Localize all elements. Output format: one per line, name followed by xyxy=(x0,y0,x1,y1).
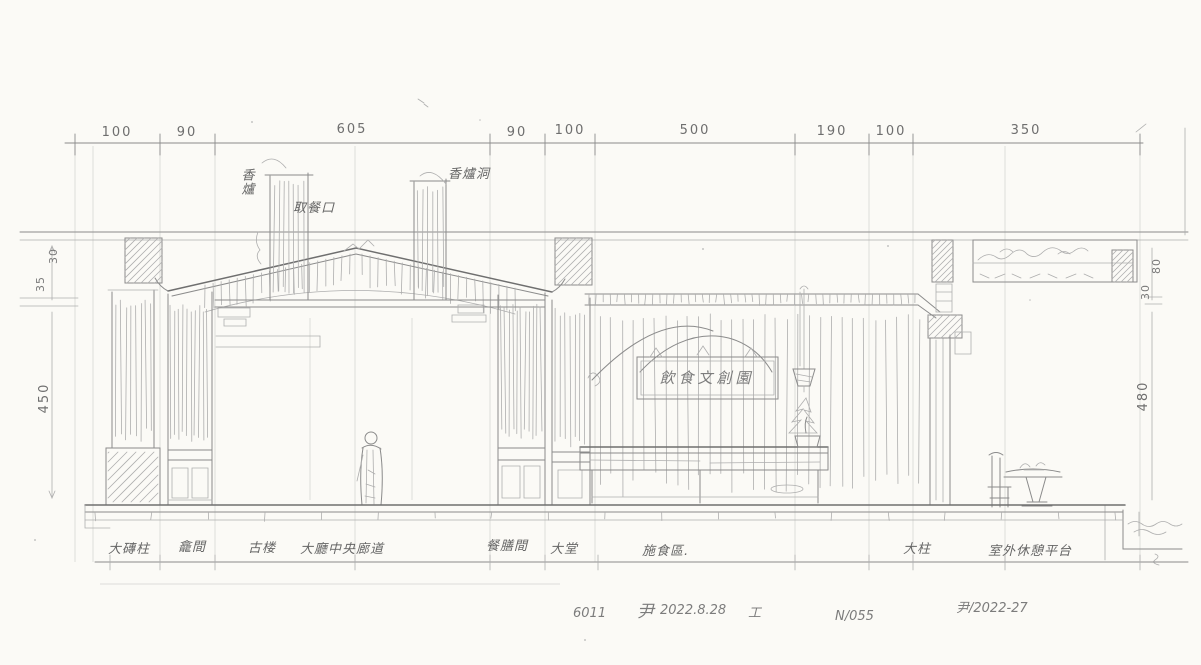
block2-hatch xyxy=(555,238,592,285)
pencil-hatch-line xyxy=(125,238,151,264)
pencil-hatch-line xyxy=(775,513,776,518)
dim-190: 190 xyxy=(817,124,848,139)
pencil-hatch-line xyxy=(645,295,646,304)
pencil-hatch-line xyxy=(417,191,418,287)
pillar3-base-panels xyxy=(502,466,540,498)
window-callout: 取餐口 xyxy=(293,201,335,216)
pencil-hatch-line xyxy=(702,295,703,302)
dim-100-right: 100 xyxy=(876,124,907,139)
outdoor-chair xyxy=(988,453,1011,508)
pencil-hatch-line xyxy=(504,308,506,434)
pencil-hatch-line xyxy=(108,452,127,471)
pencil-hatch-line xyxy=(809,316,810,484)
room-label-shrine: 龕間 xyxy=(178,539,207,555)
pencil-hatch-line xyxy=(127,248,162,283)
bonsai-trunk xyxy=(805,417,807,433)
pencil-hatch-line xyxy=(808,295,809,302)
room-label-corridor: 大廳中央廊道 xyxy=(300,541,385,557)
pencil-hatch-line xyxy=(458,275,459,298)
incense-stand-scribble xyxy=(256,232,261,264)
speck xyxy=(251,121,253,123)
pencil-hatch-line xyxy=(422,189,423,290)
pencil-hatch-line xyxy=(540,307,542,431)
pencil-hatch-line xyxy=(897,317,898,483)
elevation-sketch-canvas: 100 90 605 90 100 500 190 100 350 30 35 … xyxy=(0,0,1201,665)
pencil-hatch-line xyxy=(108,452,118,462)
beam-ticks xyxy=(589,295,915,306)
pencil-hatch-line xyxy=(108,452,154,498)
incense-vent-callout: 香爐洞 xyxy=(448,167,491,182)
pencil-hatch-line xyxy=(122,466,158,502)
pencil-hatch-line xyxy=(194,311,195,435)
wall-planks xyxy=(600,314,919,497)
steps-and-water xyxy=(1105,505,1182,565)
room-label-hall: 大堂 xyxy=(550,542,579,557)
pencil-hatch-line xyxy=(1112,258,1133,279)
pencil-hatch-line xyxy=(273,186,275,293)
central-opening xyxy=(216,318,412,505)
pencil-hatch-line xyxy=(1112,252,1133,273)
pencil-hatch-line xyxy=(394,261,395,286)
pencil-hatch-line xyxy=(108,452,136,480)
pencil-hatch-line xyxy=(688,295,689,304)
figure-body-outline xyxy=(361,448,383,505)
pencil-hatch-line xyxy=(888,513,889,520)
callout-leader-right xyxy=(420,172,446,184)
footer-notes: 6011 尹 2022.8.28 工 N/055 尹/2022-27 xyxy=(573,601,1028,624)
pencil-hatch-line xyxy=(341,256,342,281)
top-dimension-line: 100 90 605 90 100 500 190 100 350 xyxy=(65,122,1143,155)
pillar4-grain xyxy=(555,308,585,447)
pencil-hatch-line xyxy=(520,307,521,439)
figure-head xyxy=(365,432,377,444)
pencil-hatch-line xyxy=(120,300,121,434)
counter-legs xyxy=(592,470,818,503)
pencil-hatch-line xyxy=(191,312,192,442)
left-pillars xyxy=(106,290,212,505)
small-scribble xyxy=(1154,554,1159,565)
bonsai xyxy=(789,398,820,447)
pencil-hatch-line xyxy=(901,295,902,304)
pencil-hatch-line xyxy=(108,452,145,489)
pencil-hatch-line xyxy=(555,238,590,273)
pencil-hatch-line xyxy=(932,240,947,255)
pencil-hatch-line xyxy=(743,319,744,473)
dim-100-mid: 100 xyxy=(555,123,586,138)
right-dim-80: 80 xyxy=(1150,258,1163,274)
dim-100-left: 100 xyxy=(102,125,133,140)
block1-hatch xyxy=(125,238,162,283)
pencil-hatch-line xyxy=(170,305,171,438)
scanned-drawing-sheet: 100 90 605 90 100 500 190 100 350 30 35 … xyxy=(0,0,1201,665)
pencil-hatch-line xyxy=(483,281,484,312)
dining-hall: 飲食文創園 xyxy=(580,286,971,505)
bracket-left xyxy=(218,308,250,326)
left-dimensions: 30 35 450 xyxy=(34,246,60,498)
pencil-hatch-line xyxy=(524,312,526,429)
dim-90-left: 90 xyxy=(177,125,198,140)
pencil-hatch-line xyxy=(555,243,592,280)
pencil-hatch-line xyxy=(775,318,776,492)
pencil-hatch-line xyxy=(151,513,152,520)
pencil-hatch-line xyxy=(278,270,279,292)
pencil-hatch-line xyxy=(752,295,753,302)
pencil-hatch-line xyxy=(919,320,920,484)
callout-leader-left xyxy=(262,159,286,168)
step-profile xyxy=(1123,510,1182,549)
pencil-hatch-line xyxy=(302,264,303,288)
pencil-hatch-line xyxy=(716,295,717,302)
incense-burners: 香爐 取餐口 香爐洞 xyxy=(239,159,492,300)
right-dim-480: 480 xyxy=(1136,381,1151,412)
scan-specks xyxy=(34,99,1031,641)
beam-section-blocks xyxy=(125,238,592,285)
note-code: 6011 xyxy=(573,606,606,621)
pencil-hatch-line xyxy=(317,261,318,291)
pencil-hatch-line xyxy=(617,295,618,302)
pendant-shade xyxy=(793,369,815,386)
note-signature: 尹 xyxy=(637,602,656,622)
pencil-hatch-line xyxy=(1112,250,1117,255)
pencil-hatch-line xyxy=(1112,250,1123,261)
pencil-hatch-line xyxy=(149,493,158,502)
pencil-hatch-line xyxy=(285,268,286,292)
pencil-hatch-line xyxy=(687,316,689,489)
room-label-pantry: 餐膳間 xyxy=(486,539,529,554)
pencil-hatch-line xyxy=(816,295,817,304)
pencil-hatch-line xyxy=(786,320,787,492)
pencil-hatch-line xyxy=(108,452,109,453)
pencil-hatch-line xyxy=(578,271,592,285)
pencil-hatch-line xyxy=(141,303,142,441)
figure-shoulders xyxy=(362,445,381,449)
bonsai-pot xyxy=(795,436,820,447)
pencil-hatch-line xyxy=(140,484,158,502)
pillar1-base-hatch xyxy=(108,452,158,502)
pillar4-base-panel xyxy=(558,470,582,498)
pencil-hatch-line xyxy=(928,315,936,323)
pencil-hatch-line xyxy=(570,316,571,447)
outdoor-table xyxy=(1004,463,1062,506)
pencil-hatch-line xyxy=(928,315,950,337)
left-dim-450: 450 xyxy=(37,383,52,414)
pencil-hatch-line xyxy=(932,246,953,267)
pencil-hatch-line xyxy=(1121,270,1133,282)
vertical-grid-lines xyxy=(75,146,1140,562)
pencil-hatch-line xyxy=(610,318,611,474)
pencil-hatch-line xyxy=(207,309,208,437)
pencil-hatch-line xyxy=(1127,276,1133,282)
terrace-block-right-hatch xyxy=(1112,250,1133,282)
pencil-hatch-line xyxy=(1115,513,1116,520)
pencil-hatch-line xyxy=(213,283,214,308)
ladder-bracket xyxy=(936,284,952,312)
roof-lower-line xyxy=(172,254,548,296)
speck xyxy=(479,119,481,121)
pencil-hatch-line xyxy=(186,309,187,436)
pencil-hatch-line xyxy=(858,295,859,302)
note-revision: 尹/2022-27 xyxy=(956,601,1028,616)
pencil-hatch-line xyxy=(745,295,746,302)
ground xyxy=(85,505,1125,528)
pencil-hatch-line xyxy=(565,313,566,439)
pencil-hatch-line xyxy=(934,315,957,338)
beam-end-step xyxy=(918,294,940,318)
pencil-hatch-line xyxy=(863,318,864,476)
pencil-hatch-line xyxy=(536,304,537,435)
pencil-hatch-line xyxy=(842,317,843,486)
pencil-hatch-line xyxy=(932,258,953,279)
pillar1-base xyxy=(106,448,160,505)
right-dim-30: 30 xyxy=(1139,284,1152,300)
pencil-hatch-line xyxy=(136,306,137,436)
speck xyxy=(887,245,889,247)
room-label-column: 大柱 xyxy=(903,542,932,557)
pencil-hatch-line xyxy=(182,305,183,432)
pencil-hatch-line xyxy=(475,279,476,301)
pencil-hatch-line xyxy=(908,295,909,303)
room-label-tower: 古楼 xyxy=(248,541,277,556)
right-column-grain xyxy=(936,338,943,502)
pencil-hatch-line xyxy=(437,190,438,292)
pencil-hatch-line xyxy=(787,295,788,301)
room-label-serving: 施食區. xyxy=(642,543,689,559)
dim-90-right: 90 xyxy=(507,125,528,140)
pencil-hatch-line xyxy=(125,241,162,278)
pavilion-roof xyxy=(155,240,565,326)
pencil-hatch-line xyxy=(766,295,767,305)
pencil-hatch-line xyxy=(134,255,162,283)
pillar2-grain xyxy=(170,305,208,442)
dim-500: 500 xyxy=(680,123,711,138)
pencil-hatch-line xyxy=(865,295,866,305)
pencil-hatch-line xyxy=(126,308,127,440)
note-sheet-number: N/055 xyxy=(835,609,874,624)
dim-350: 350 xyxy=(1011,123,1042,138)
pencil-hatch-line xyxy=(501,306,502,430)
signboard-text: 飲食文創園 xyxy=(659,369,754,387)
pillar2-base-panels xyxy=(172,468,208,498)
room-label-terrace: 室外休憩平台 xyxy=(988,543,1072,559)
speck xyxy=(584,639,586,641)
corner-slash xyxy=(1136,124,1146,132)
note-date: 2022.8.28 xyxy=(660,603,726,618)
water-squiggle xyxy=(1128,522,1182,527)
pencil-hatch-line xyxy=(229,280,230,306)
burner2-hatch xyxy=(417,187,443,296)
left-dim-30: 30 xyxy=(47,248,60,264)
leaf-hatch-row xyxy=(980,274,1093,278)
pencil-hatch-line xyxy=(203,312,204,440)
pencil-hatch-line xyxy=(759,295,760,306)
speck xyxy=(34,539,36,541)
pencil-hatch-line xyxy=(595,295,596,306)
figure-silhouette xyxy=(357,432,382,505)
room-label-band: 大磚柱 龕間 古楼 大廳中央廊道 餐膳間 大堂 施食區. 大柱 室外休憩平台 xyxy=(95,539,1188,570)
pencil-hatch-line xyxy=(425,268,426,298)
pencil-hatch-line xyxy=(198,305,199,437)
chair-back xyxy=(989,453,1003,508)
speck-stroke xyxy=(418,99,428,107)
pencil-hatch-line xyxy=(944,513,945,520)
room-label-pillar: 大磚柱 xyxy=(108,542,151,557)
rockery-profile xyxy=(978,248,1088,260)
pillar1-grain xyxy=(115,300,151,441)
left-dim-35: 35 xyxy=(34,276,47,292)
corbel-hatch xyxy=(928,315,962,338)
pencil-hatch-line xyxy=(513,305,514,429)
pencil-hatch-line xyxy=(886,320,887,474)
pencil-hatch-line xyxy=(831,513,832,521)
pencil-hatch-line xyxy=(401,263,402,294)
pencil-hatch-line xyxy=(178,309,179,439)
pencil-hatch-line xyxy=(125,238,130,243)
pencil-hatch-line xyxy=(830,316,831,485)
pencil-hatch-line xyxy=(145,300,146,428)
pencil-hatch-line xyxy=(673,295,674,303)
terrace-block-left-hatch xyxy=(932,240,953,282)
pencil-hatch-line xyxy=(555,238,562,245)
pencil-hatch-line xyxy=(113,457,158,502)
pencil-hatch-line xyxy=(557,250,592,285)
pencil-hatch-line xyxy=(932,252,953,273)
pencil-hatch-line xyxy=(624,295,625,305)
pencil-hatch-line xyxy=(491,513,492,518)
pencil-hatch-line xyxy=(941,270,953,282)
note-suffix: 工 xyxy=(748,606,763,621)
pencil-hatch-line xyxy=(780,295,781,303)
pencil-hatch-line xyxy=(434,270,435,293)
under-eave-curve xyxy=(205,290,515,314)
pencil-hatch-line xyxy=(151,304,152,431)
pencil-hatch-line xyxy=(585,278,592,285)
dim-605: 605 xyxy=(337,122,368,137)
pencil-hatch-line xyxy=(947,276,953,282)
incense-stand-callout: 香爐 xyxy=(239,168,255,196)
pencil-hatch-line xyxy=(443,187,444,287)
pencil-hatch-line xyxy=(932,240,953,261)
table-pedestal xyxy=(1022,477,1052,506)
pencil-hatch-line xyxy=(555,238,583,266)
pencil-hatch-line xyxy=(564,257,592,285)
speck xyxy=(1029,299,1031,301)
ground-left-step xyxy=(85,505,110,528)
pencil-hatch-line xyxy=(125,238,158,271)
pencil-hatch-line xyxy=(731,295,732,303)
counter-face-streaks xyxy=(590,460,820,463)
middle-pillars xyxy=(498,293,590,505)
pencil-hatch-line xyxy=(264,513,265,521)
pencil-hatch-line xyxy=(533,306,534,439)
pencil-hatch-line xyxy=(837,295,838,302)
bracket-right xyxy=(452,305,486,322)
speck xyxy=(702,248,704,250)
pencil-hatch-line xyxy=(802,295,803,304)
bonsai-foliage xyxy=(789,398,817,433)
dimension-ticks xyxy=(75,134,1140,155)
pencil-hatch-line xyxy=(724,295,725,305)
pencil-hatch-line xyxy=(1058,513,1059,519)
pencil-hatch-line xyxy=(279,181,280,291)
pendant-hook xyxy=(800,286,808,289)
pillar3-grain xyxy=(501,304,542,439)
